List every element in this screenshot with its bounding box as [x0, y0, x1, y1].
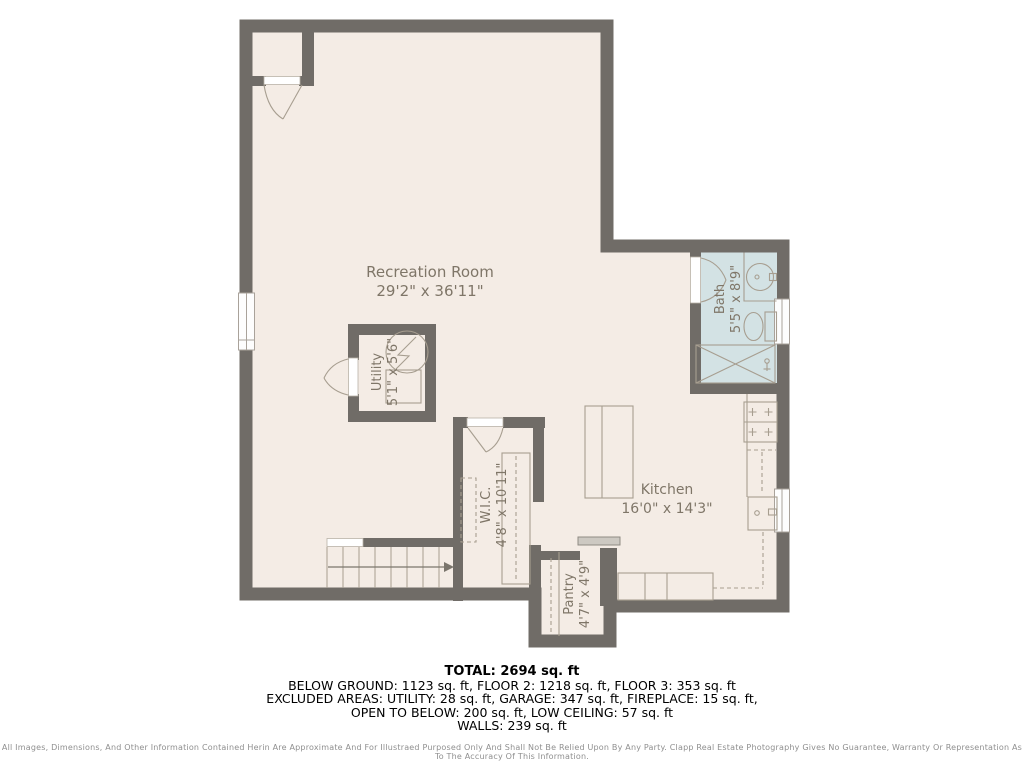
pantry-opening-header [578, 537, 620, 545]
disclaimer-text: All Images, Dimensions, And Other Inform… [0, 743, 1024, 761]
floor-plan-svg: Recreation Room 29'2" x 36'11" Kitchen 1… [0, 0, 1024, 660]
area-summary: TOTAL: 2694 sq. ft BELOW GROUND: 1123 sq… [0, 665, 1024, 733]
pantry-dims: 4'7" x 4'9" [578, 560, 593, 628]
excluded-areas: EXCLUDED AREAS: UTILITY: 28 sq. ft, GARA… [0, 692, 1024, 706]
kitchen-dims: 16'0" x 14'3" [621, 501, 712, 517]
kitchen-name: Kitchen [641, 482, 694, 498]
open-below-areas: OPEN TO BELOW: 200 sq. ft, LOW CEILING: … [0, 706, 1024, 720]
utility-name: Utility [370, 353, 385, 392]
floor-plan-page: Recreation Room 29'2" x 36'11" Kitchen 1… [0, 0, 1024, 768]
wic-dims: 4'8" x 10'11" [495, 463, 510, 548]
total-area: TOTAL: 2694 sq. ft [0, 665, 1024, 679]
pantry-name: Pantry [562, 573, 577, 615]
recreation-room-name: Recreation Room [366, 263, 494, 281]
recreation-room-dims: 29'2" x 36'11" [376, 282, 483, 300]
bath-dims: 5'5" x 8'9" [729, 265, 744, 333]
bath-name: Bath [713, 284, 728, 314]
floor-areas: BELOW GROUND: 1123 sq. ft, FLOOR 2: 1218… [0, 679, 1024, 693]
utility-dims: 5'1" x 5'6" [386, 338, 401, 406]
wic-name: W.I.C. [479, 487, 494, 524]
walls-area: WALLS: 239 sq. ft [0, 719, 1024, 733]
